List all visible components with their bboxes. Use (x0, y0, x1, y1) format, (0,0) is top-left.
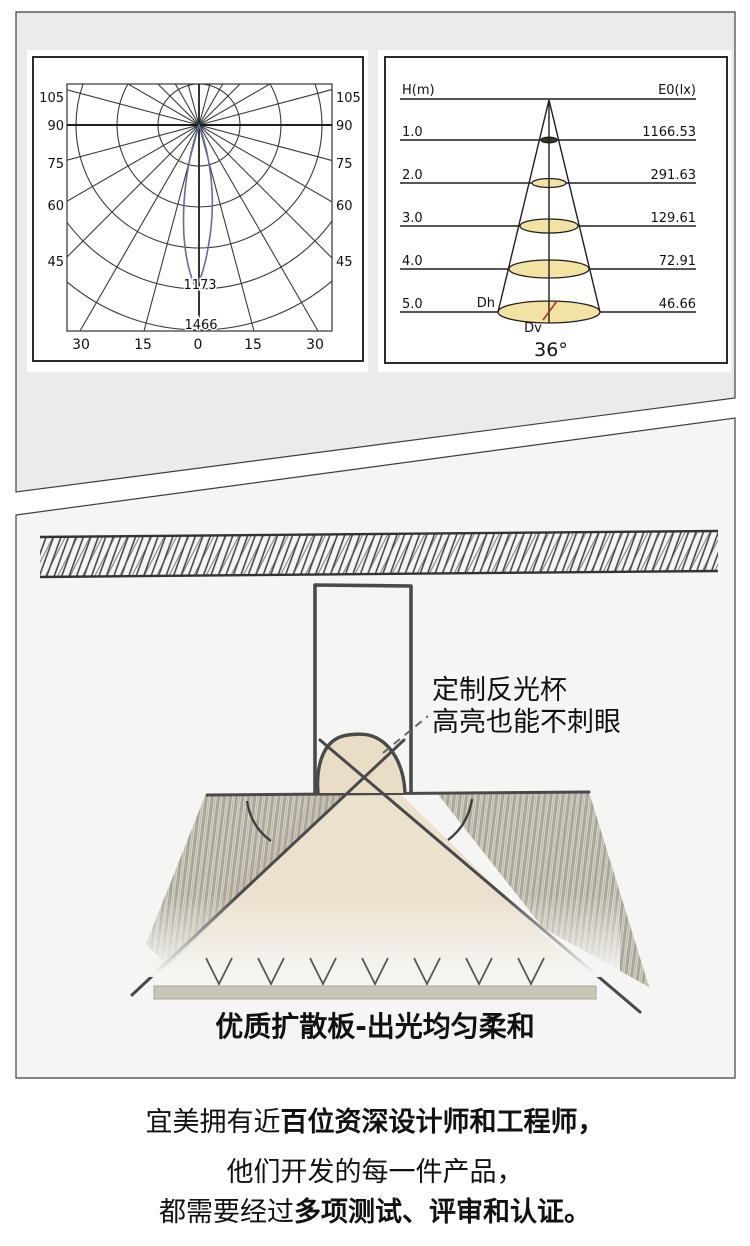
svg-text:90: 90 (336, 119, 353, 134)
polar-chart-border (33, 57, 363, 361)
svg-text:1166.53: 1166.53 (642, 125, 696, 140)
dh-label: Dh (477, 296, 495, 311)
svg-text:5.0: 5.0 (402, 297, 423, 312)
diffuser-caption: 优质扩散板-出光均匀柔和 (215, 1010, 535, 1043)
svg-text:75: 75 (336, 157, 353, 172)
svg-text:15: 15 (244, 337, 262, 353)
photometric-card: 105 90 75 60 45 105 90 75 60 45 1173 146… (0, 0, 735, 492)
footer-line1: 宜美拥有近百位资深设计师和工程师， (146, 1106, 605, 1138)
structure-card: 定制反光杯 高亮也能不刺眼 优质扩散板-出光均匀柔和 (16, 418, 735, 1078)
height-column-header: H(m) (402, 83, 435, 98)
svg-text:291.63: 291.63 (651, 168, 697, 183)
svg-text:75: 75 (47, 157, 64, 172)
svg-text:2.0: 2.0 (402, 168, 423, 183)
svg-text:105: 105 (39, 91, 64, 106)
svg-text:45: 45 (336, 255, 353, 270)
svg-text:30: 30 (72, 337, 90, 353)
page-canvas: 105 90 75 60 45 105 90 75 60 45 1173 146… (0, 0, 750, 1246)
svg-text:129.61: 129.61 (651, 211, 697, 226)
svg-text:4.0: 4.0 (402, 254, 423, 269)
svg-text:1466: 1466 (184, 318, 217, 333)
ceiling-hatch (40, 531, 718, 577)
svg-text:46.66: 46.66 (659, 297, 696, 312)
beam-fade (120, 895, 620, 977)
illuminance-column-header: E0(lx) (658, 83, 696, 98)
annotation-line2: 高亮也能不刺眼 (432, 707, 621, 738)
svg-text:15: 15 (134, 337, 152, 353)
svg-text:1173: 1173 (183, 278, 216, 293)
dv-label: Dv (524, 321, 542, 336)
annotation-line1: 定制反光杯 (432, 675, 567, 706)
svg-text:45: 45 (47, 255, 64, 270)
beam-angle-label: 36° (534, 339, 568, 361)
svg-text:1.0: 1.0 (402, 125, 423, 140)
svg-text:60: 60 (47, 199, 64, 214)
footer-line2: 他们开发的每一件产品， (227, 1157, 524, 1188)
product-detail-image: 105 90 75 60 45 105 90 75 60 45 1173 146… (0, 0, 750, 1246)
svg-text:105: 105 (336, 91, 361, 106)
footer-line3: 都需要经过多项测试、评审和认证。 (159, 1196, 591, 1228)
svg-text:90: 90 (47, 119, 64, 134)
svg-text:0: 0 (194, 337, 203, 353)
svg-text:72.91: 72.91 (659, 254, 696, 269)
cone-chart: H(m) E0(lx) 1.0 2.0 3.0 4.0 5.0 1166.53 (385, 57, 727, 363)
diffuser-bar (154, 986, 596, 999)
svg-text:30: 30 (306, 337, 324, 353)
svg-text:60: 60 (336, 199, 353, 214)
svg-text:3.0: 3.0 (402, 211, 423, 226)
footer-text: 宜美拥有近百位资深设计师和工程师， 他们开发的每一件产品， 都需要经过多项测试、… (146, 1106, 605, 1228)
